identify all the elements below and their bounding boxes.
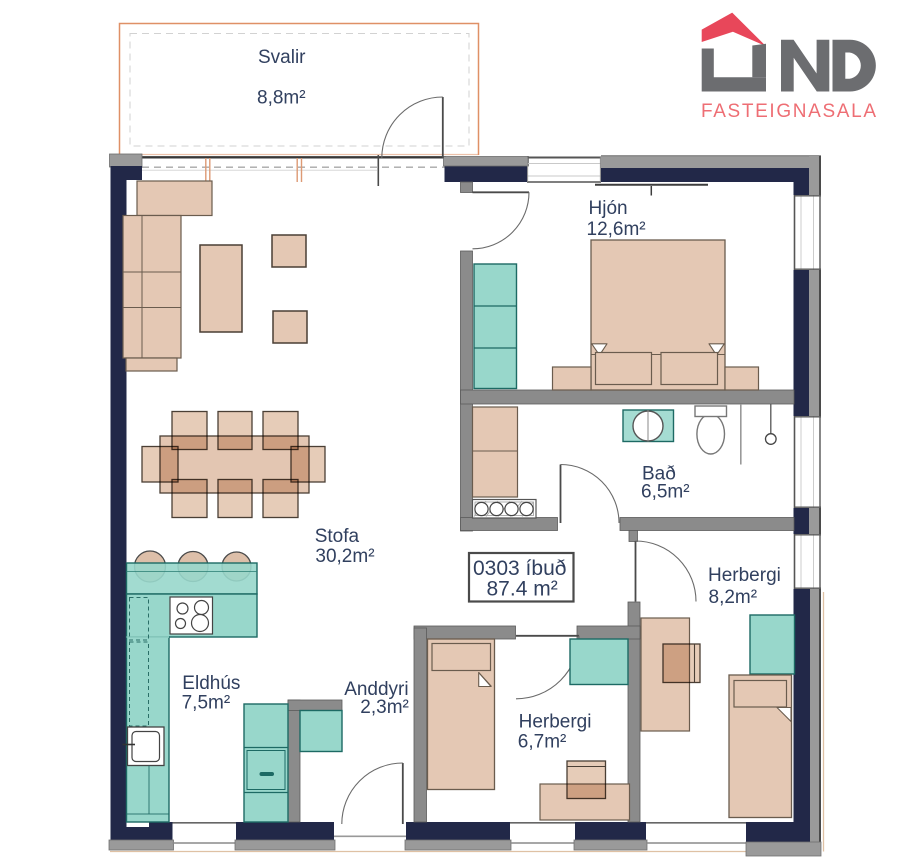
svg-text:30,2m²: 30,2m² (315, 546, 374, 567)
svg-text:8,2m²: 8,2m² (709, 587, 758, 608)
svg-text:6,5m²: 6,5m² (641, 482, 690, 503)
svg-text:8,8m²: 8,8m² (257, 88, 306, 109)
svg-text:7,5m²: 7,5m² (182, 693, 231, 714)
svg-text:FASTEIGNASALA: FASTEIGNASALA (701, 101, 878, 122)
svg-text:Herbergi: Herbergi (519, 712, 592, 733)
svg-text:Stofa: Stofa (315, 526, 360, 547)
svg-text:Svalir: Svalir (258, 47, 306, 68)
svg-text:Herbergi: Herbergi (708, 565, 781, 586)
svg-text:Eldhús: Eldhús (182, 673, 240, 694)
svg-text:12,6m²: 12,6m² (587, 219, 646, 240)
svg-text:6,7m²: 6,7m² (518, 732, 567, 753)
svg-text:87.4 m²: 87.4 m² (487, 578, 558, 601)
svg-text:Hjón: Hjón (589, 198, 628, 219)
svg-text:2,3m²: 2,3m² (360, 697, 409, 718)
